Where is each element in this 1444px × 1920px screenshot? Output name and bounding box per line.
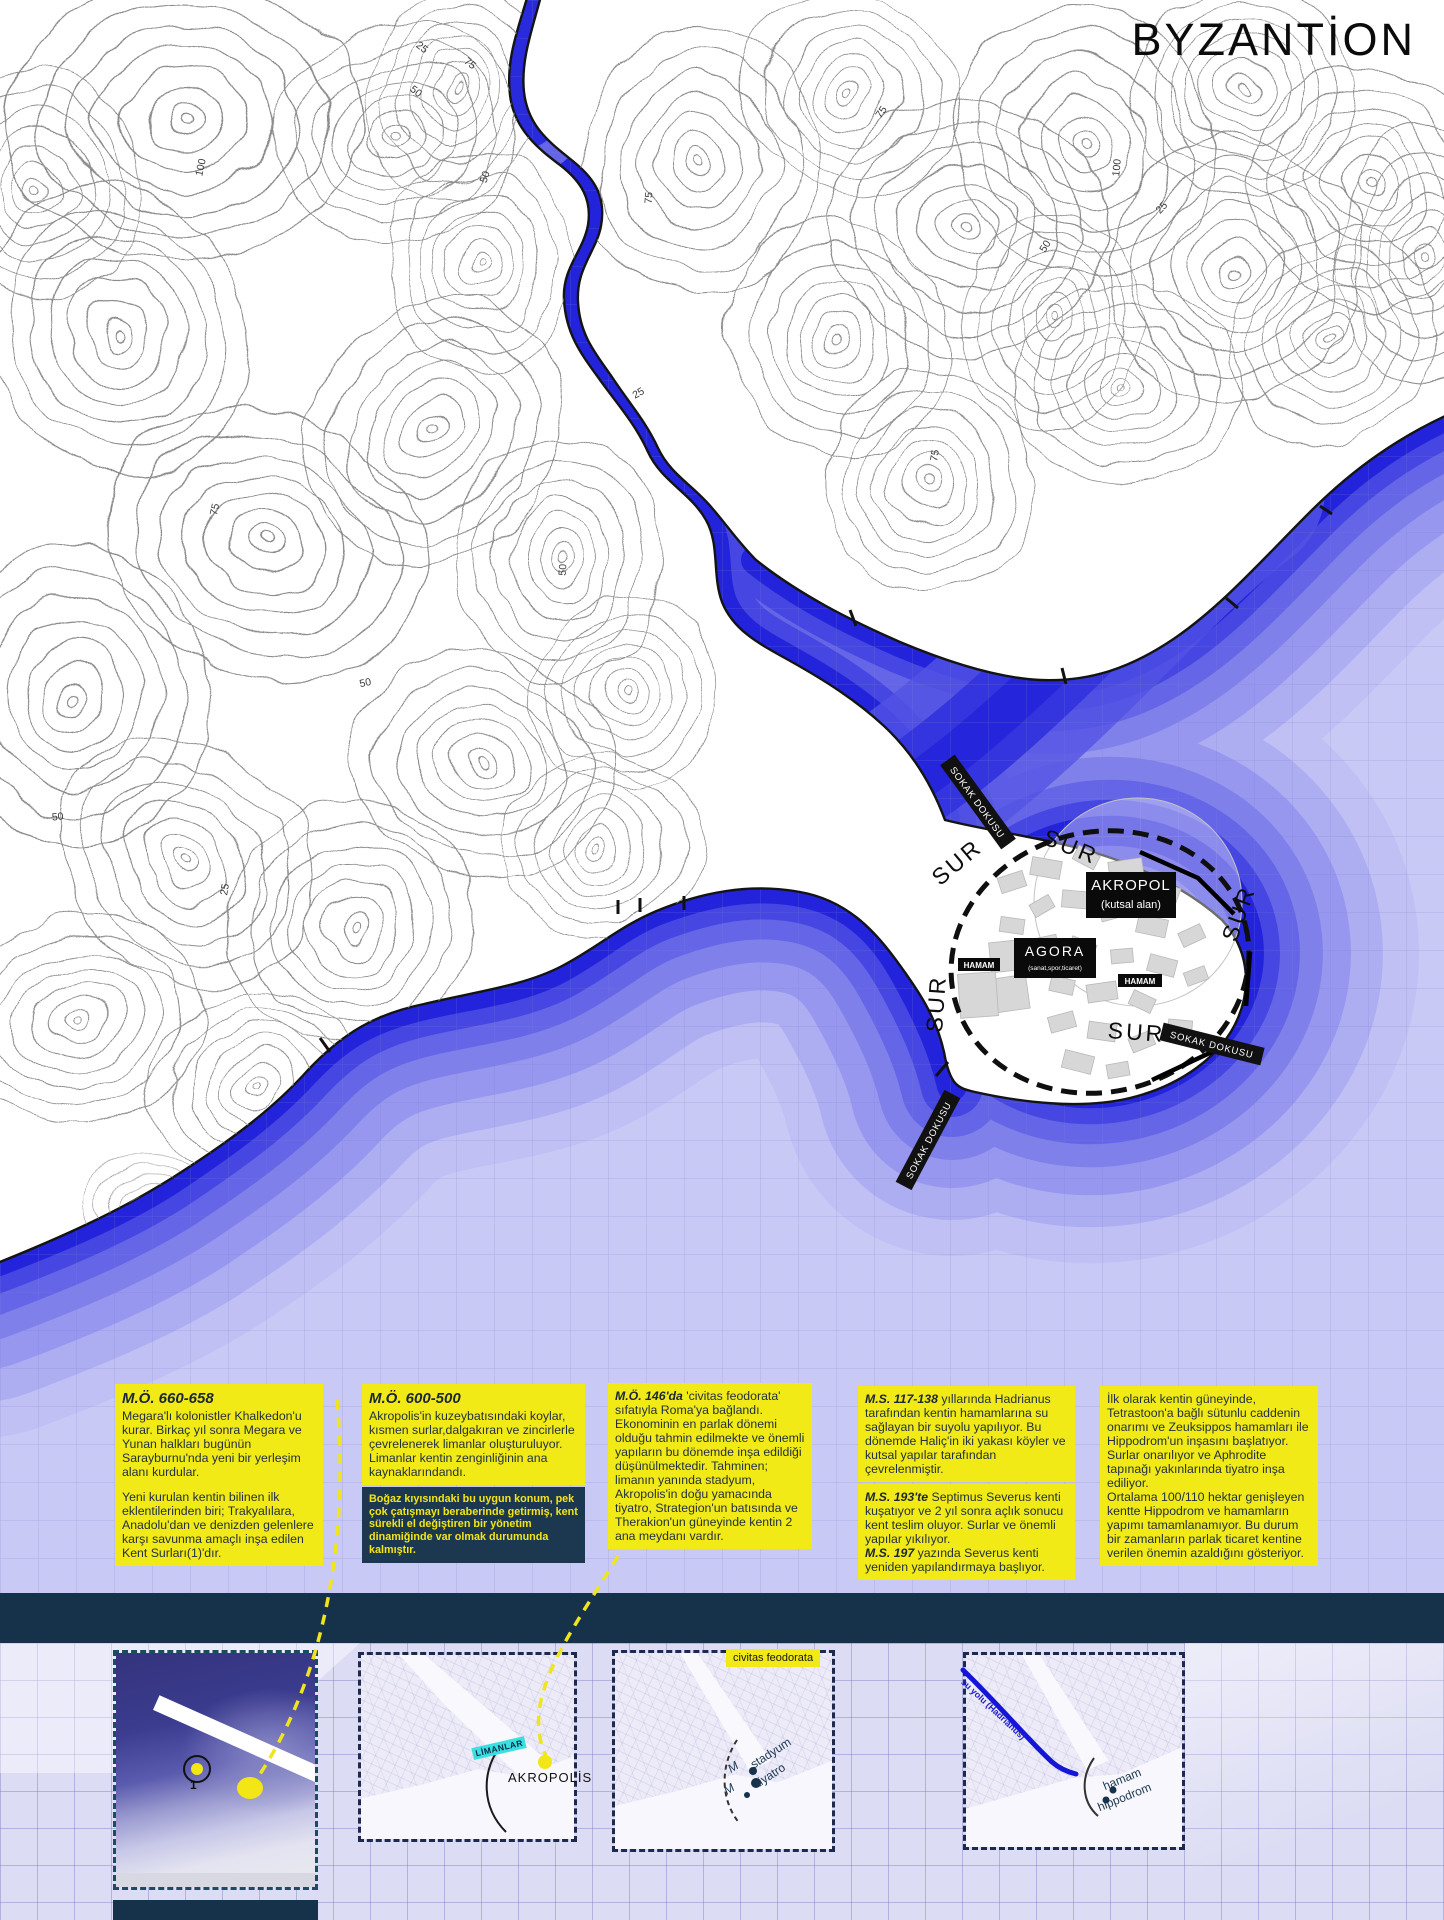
thumbnail-civitas-map (612, 1650, 835, 1852)
svg-text:50: 50 (51, 810, 64, 823)
timeline-5-text: İlk olarak kentin güneyinde, Tetrastoon'… (1107, 1392, 1311, 1490)
svg-text:(kutsal alan): (kutsal alan) (1101, 899, 1161, 911)
timeline-1-note-text: Yeni kurulan kentin bilinen ilk eklentil… (122, 1490, 314, 1560)
divider-band (0, 1593, 1444, 1643)
civitas-feodorata-tag: civitas feodorata (726, 1649, 820, 1667)
thumbnail-relief-map (113, 1650, 318, 1890)
svg-text:(sanat,spor,ticaret): (sanat,spor,ticaret) (1028, 965, 1082, 972)
svg-text:100: 100 (1110, 158, 1124, 177)
hamam-label: HAMAM (964, 961, 995, 970)
svg-text:75: 75 (643, 191, 656, 204)
timeline-5-text2: Ortalama 100/110 hektar genişleyen kentt… (1107, 1490, 1311, 1560)
timeline-box-1-note: Yeni kurulan kentin bilinen ilk eklentil… (115, 1484, 323, 1566)
timeline-2-note-text: Boğaz kıyısındaki bu uygun konum, pek ço… (369, 1493, 578, 1556)
hamam-label: HAMAM (1125, 977, 1156, 986)
thumb1-footer-bar (113, 1900, 318, 1920)
thumb1-marker-number: 1 (190, 1778, 197, 1792)
sur-label: SUR (921, 974, 951, 1033)
sur-label: SUR (1107, 1017, 1166, 1047)
timeline-box-3: M.Ö. 146'da 'civitas feodorata' sıfatıyl… (608, 1383, 812, 1549)
thumbnail-severus-map (963, 1652, 1185, 1850)
timeline-1-text: Megara'lı kolonistler Khalkedon'u kurar.… (122, 1409, 302, 1479)
timeline-4-note2-date: M.S. 197 (865, 1546, 914, 1560)
timeline-box-1: M.Ö. 660-658Megara'lı kolonistler Khalke… (115, 1384, 323, 1485)
timeline-4-date: M.S. 117-138 (865, 1392, 938, 1406)
thumbnail-akropolis-map (358, 1652, 577, 1842)
timeline-box-4: M.S. 117-138 yıllarında Hadrianus tarafı… (858, 1386, 1075, 1482)
timeline-3-date: M.Ö. 146'da (615, 1389, 683, 1403)
timeline-1-date: M.Ö. 660-658 (122, 1390, 316, 1407)
akropol-label: AKROPOL (kutsal alan) (1086, 872, 1176, 918)
timeline-4-note1-date: M.S. 193'te (865, 1490, 928, 1504)
timeline-box-2-note: Boğaz kıyısındaki bu uygun konum, pek ço… (362, 1487, 585, 1563)
timeline-2-text: Akropolis'in kuzeybatısındaki koylar, kı… (369, 1409, 575, 1479)
timeline-box-4-note: M.S. 193'te Septimus Severus kenti kuşat… (858, 1484, 1075, 1580)
agora-label: AGORA (sanat,spor,ticaret) (1014, 938, 1096, 978)
svg-text:25: 25 (218, 883, 232, 897)
page-title: BYZANTİON (996, 14, 1416, 66)
poster-byzantion: 100 25 50 75 50 75 75 100 25 75 50 50 25… (0, 0, 1444, 1920)
strip-wash-right (1185, 1643, 1444, 1920)
svg-text:50: 50 (557, 563, 570, 576)
svg-text:75: 75 (928, 449, 942, 463)
timeline-box-5: İlk olarak kentin güneyinde, Tetrastoon'… (1100, 1386, 1318, 1566)
timeline-3-text: 'civitas feodorata' sıfatıyla Roma'ya ba… (615, 1389, 804, 1543)
timeline-2-date: M.Ö. 600-500 (369, 1390, 578, 1407)
timeline-box-2: M.Ö. 600-500Akropolis'in kuzeybatısındak… (362, 1384, 585, 1485)
svg-text:AGORA: AGORA (1025, 943, 1086, 959)
akropolis-label: AKROPOLİS (508, 1770, 592, 1785)
svg-text:AKROPOL: AKROPOL (1091, 877, 1171, 894)
relief-texture (116, 1653, 315, 1887)
